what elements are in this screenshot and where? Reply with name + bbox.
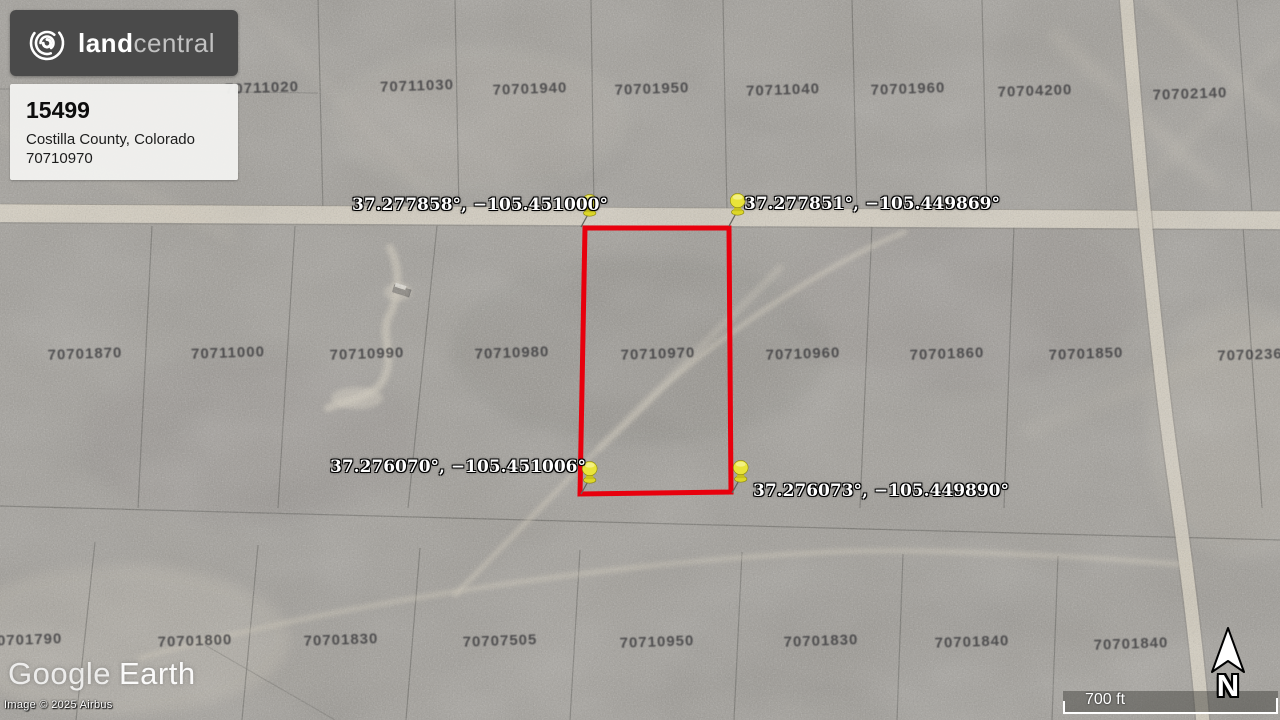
google-earth-logo: GoogleEarth bbox=[8, 656, 196, 692]
scale-bar-left-tick bbox=[1063, 701, 1065, 712]
google-earth-logo-google: Google bbox=[8, 656, 111, 691]
imagery-copyright: Image © 2025 Airbus bbox=[4, 699, 113, 711]
brand-logo-card: landcentral bbox=[10, 10, 238, 76]
scale-bar-label: 700 ft bbox=[1085, 691, 1125, 709]
coordinate-label-top-left: 37.277858°, −105.451000° bbox=[352, 195, 608, 215]
listing-id: 15499 bbox=[26, 97, 238, 124]
map-canvas[interactable]: 70711020 70711030 70701940 70701950 7071… bbox=[0, 0, 1280, 720]
coordinate-label-top-right: 37.277851°, −105.449869° bbox=[744, 194, 1000, 214]
scale-bar-right-tick bbox=[1276, 698, 1278, 712]
coordinate-label-bottom-right: 37.276073°, −105.449890° bbox=[753, 481, 1009, 501]
landcentral-swirl-icon bbox=[26, 22, 68, 64]
coordinate-label-bottom-left: 37.276070°, −105.451006° bbox=[330, 457, 586, 477]
listing-county: Costilla County, Colorado bbox=[26, 131, 238, 148]
brand-word-central: central bbox=[133, 28, 215, 58]
compass-north-label: N bbox=[1217, 668, 1239, 704]
brand-logo-text: landcentral bbox=[78, 28, 215, 59]
listing-info-card: 15499 Costilla County, Colorado 70710970 bbox=[10, 84, 238, 180]
brand-word-land: land bbox=[78, 28, 133, 58]
google-earth-logo-earth: Earth bbox=[119, 656, 196, 691]
compass[interactable]: N bbox=[1203, 626, 1253, 710]
listing-apn: 70710970 bbox=[26, 150, 238, 167]
